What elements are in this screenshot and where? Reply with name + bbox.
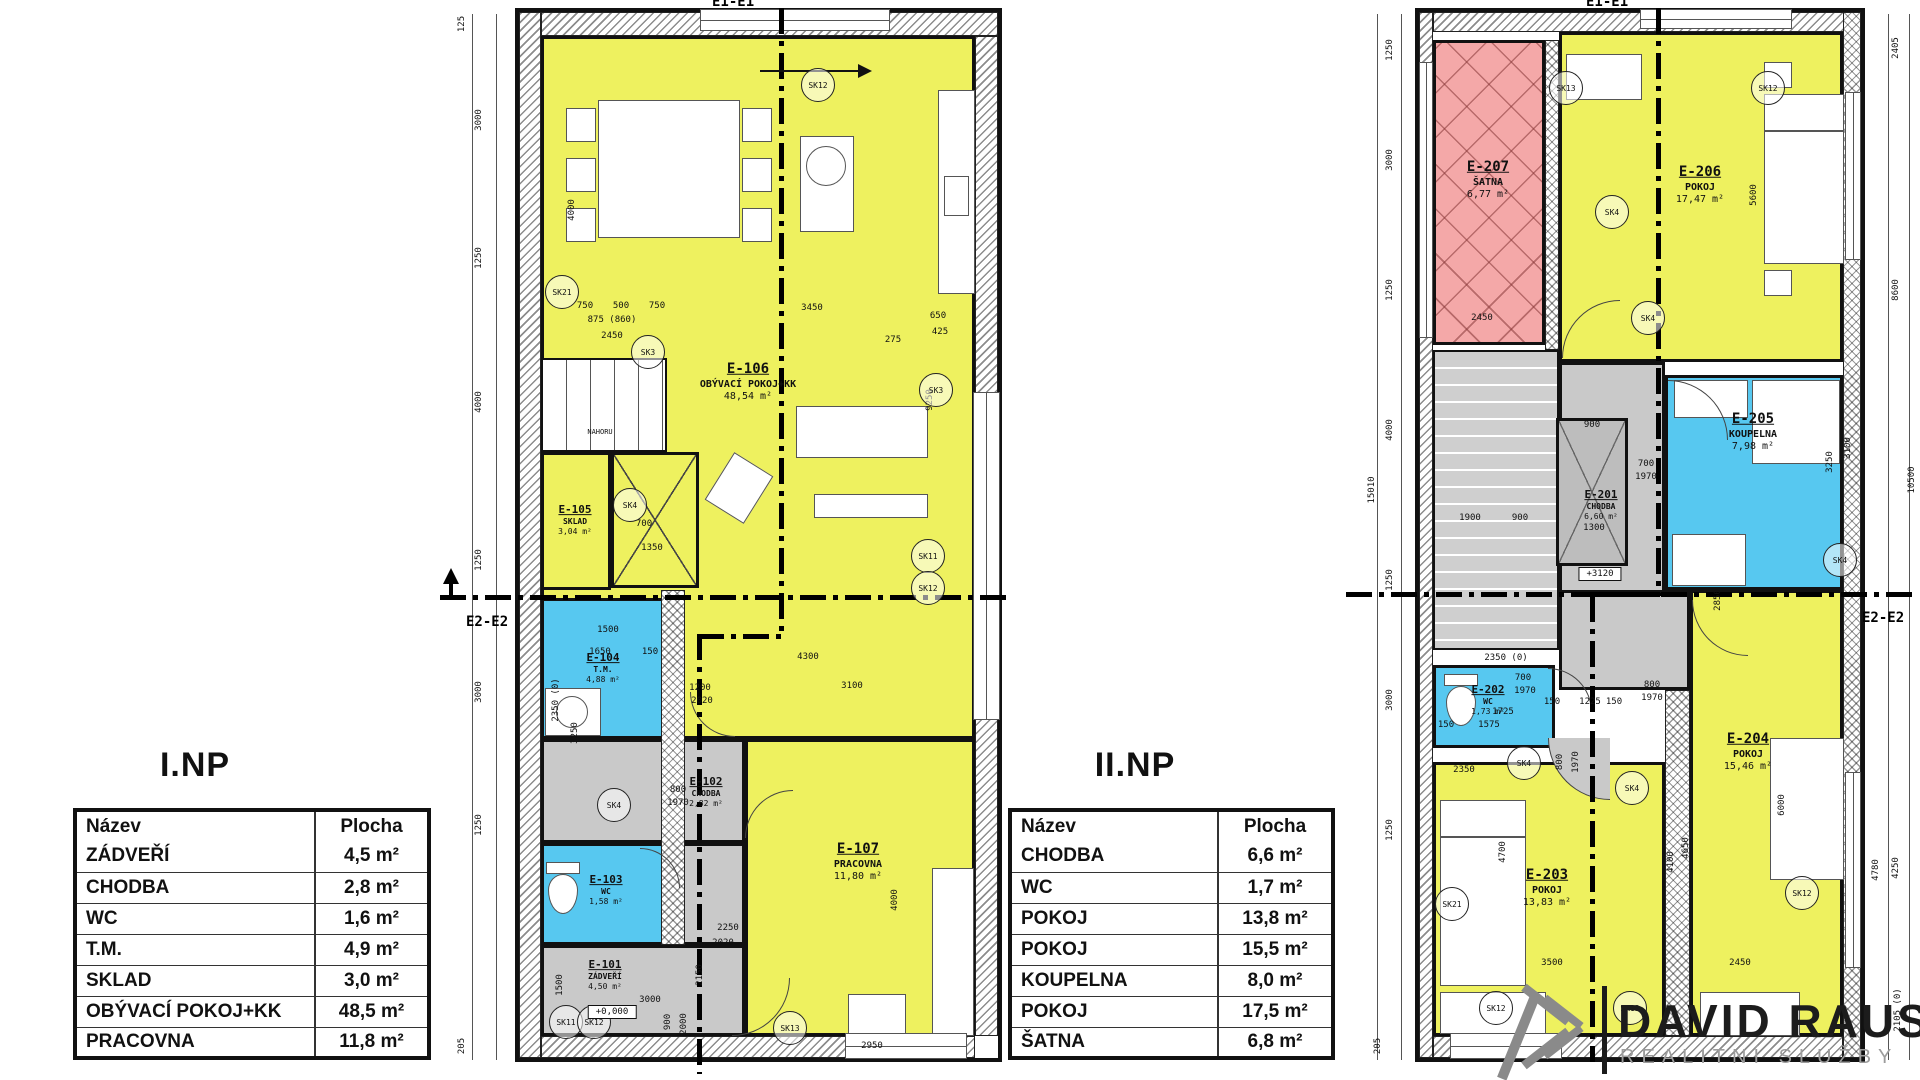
dimension-label: 1225 [1579,697,1601,707]
window [1640,9,1792,29]
room-label-e205: E-205 KOUPELNA 7,98 m² [1729,411,1777,454]
dimension-label: 1350 [641,543,663,553]
dimension-label: 4000 [474,391,484,413]
dimension-label: 750 [577,301,593,311]
bathtub [1672,534,1746,586]
hall-vestibule [1559,590,1690,690]
room-area-cell: 4,5 m² [315,841,429,872]
dimension-label: 3250 [1825,451,1835,473]
window [1845,772,1861,968]
floor2-area-table: Název Plocha CHODBA 6,6 m² WC 1,7 m² POK… [1008,808,1335,1060]
dimension-label: 2000 [679,1013,689,1035]
room-label-e103: E-103 WC 1,58 m² [589,873,623,907]
dimension-label: 1970 [1635,472,1657,482]
sk-marker: SK21 [545,275,579,309]
toilet-tank [546,862,580,874]
dimension-label: 4000 [890,889,900,911]
room-area-cell: 6,6 m² [1218,841,1333,872]
dimension-label: 3000 [1385,149,1395,171]
nightstand [1764,270,1792,296]
dimension-label: 1200 [689,683,711,693]
dimension-label: 800 [670,785,686,795]
sk-marker: SK4 [1823,543,1857,577]
dimension-label: 4000 [1385,419,1395,441]
chair [742,108,772,142]
sk-marker: SK4 [597,788,631,822]
sk-marker: SK12 [801,68,835,102]
dimension-label: 1900 [1459,513,1481,523]
room-label-e204: E-204 POKOJ 15,46 m² [1724,731,1772,774]
section-label-e2: E2-E2 [466,614,508,630]
dimension-label: 1250 [474,549,484,571]
dimension-label: 2450 [1471,313,1493,323]
room-area-cell: 15,5 m² [1218,934,1333,965]
floor1-area-table: Název Plocha ZÁDVEŘÍ 4,5 m² CHODBA 2,8 m… [73,808,431,1060]
dimension-label: 3100 [841,681,863,691]
sk-marker: SK11 [911,539,945,573]
dimension-label: 1575 [1478,720,1500,730]
dimension-label: 875 (860) [588,315,637,325]
bed-pillow-line [1764,130,1844,132]
dimension-label: 4000 [567,199,577,221]
header-name: Název [1010,810,1218,841]
dimension-label: 1970 [1641,693,1663,703]
room-name-cell: SKLAD [75,965,315,996]
room-name-cell: PRACOVNA [75,1027,315,1058]
room-name-cell: POKOJ [1010,903,1218,934]
dimension-label: 205 [1373,1038,1383,1054]
dimension-label: 4780 [1871,859,1881,881]
sk-marker: SK4 [1631,301,1665,335]
chair [742,208,772,242]
wall-hatch [519,12,541,1058]
sk-marker: SK12 [1751,71,1785,105]
bed [1764,94,1844,264]
room-name-cell: KOUPELNA [1010,965,1218,996]
cooktop [806,146,846,186]
dimension-label: 900 [663,1014,673,1030]
logo-divider [1602,986,1607,1074]
dimension-label: 4700 [1498,841,1508,863]
sk-marker: SK4 [1615,771,1649,805]
section-label-e1: E1-E1 [1586,0,1628,10]
staircase [1433,350,1559,650]
table-header-row: Název Plocha [1010,810,1333,841]
dimension-label: 150 [1544,697,1560,707]
table-header-row: Název Plocha [75,810,429,841]
dimension-label: 500 [613,301,629,311]
dimension-label: 425 [932,327,948,337]
sofa [796,406,928,458]
table-row: KOUPELNA 8,0 m² [1010,965,1333,996]
section-label-e2: E2-E2 [1862,610,1904,626]
room-label-e206: E-206 POKOJ 17,47 m² [1676,164,1724,207]
dimension-label: 6000 [1777,794,1787,816]
desk [848,994,906,1038]
room-area-cell: 13,8 m² [1218,903,1333,934]
dimension-label: 2350 (0) [1484,653,1527,663]
room-label-e101: E-101 ZÁDVEŘÍ 4,50 m² [588,958,622,992]
dimension-label: 150 [1438,720,1454,730]
sk-marker: SK3 [919,373,953,407]
dimension-label: 5600 [1749,184,1759,206]
dimension-label: 2020 [691,696,713,706]
dim-chain-line [472,14,473,1060]
room-area-cell: 1,6 m² [315,903,429,934]
room-area-cell: 11,8 m² [315,1027,429,1058]
section-line-e1 [1590,596,1595,1062]
logo-tagline: REALITNÍ SLUŽBY [1620,1046,1898,1069]
logo-name: DAVID RAUS [1618,994,1920,1048]
room-label-e202: E-202 WC 1,73 m² [1471,683,1505,717]
table-row: CHODBA 2,8 m² [75,872,429,903]
dimension-label: 2850 [1713,589,1723,611]
dimension-label: 900 [1584,420,1600,430]
chair [566,158,596,192]
dimension-label: 150 [642,647,658,657]
dimension-label: 1250 [474,247,484,269]
dimension-label: 15010 [1367,476,1377,503]
room-label-e105: E-105 SKLAD 3,04 m² [558,503,592,537]
section-label-e1: E1-E1 [712,0,754,10]
dim-chain-line [1401,14,1402,1060]
dimension-label: 275 [885,335,901,345]
sk-marker: SK21 [1435,887,1469,921]
floorplan-sheet: E2-E2 E1-E1 NAHORU 125300012504000125030… [0,0,1920,1080]
dim-chain-line [1377,14,1378,1060]
dimension-label: 2020 [712,938,734,948]
room-label-e104: E-104 T.M. 4,88 m² [586,651,620,685]
dimension-label: 3450 [801,303,823,313]
room-name-cell: CHODBA [75,872,315,903]
room-label-e102: E-102 CHODBA 2,82 m² [689,775,723,809]
coffee-table [814,494,928,518]
dimension-label: 4650 [1681,837,1691,859]
direction-arrow-head [858,64,872,78]
header-area: Plocha [1218,810,1333,841]
room-name-cell: WC [1010,872,1218,903]
bed-pillow-line [1440,836,1526,838]
party-wall-hatch [661,590,685,945]
dimension-label: 2150 [695,964,705,986]
table-row: SKLAD 3,0 m² [75,965,429,996]
sk-marker: SK12 [1785,876,1819,910]
dimension-label: 650 [930,311,946,321]
table-row: CHODBA 6,6 m² [1010,841,1333,872]
dimension-label: 800 [1555,754,1565,770]
dimension-label: 3000 [1385,689,1395,711]
sk-marker: SK13 [1549,71,1583,105]
dimension-label: 3250 [570,722,580,744]
table-row: ZÁDVEŘÍ 4,5 m² [75,841,429,872]
floor2-title: II.NP [1040,746,1230,785]
chair [566,108,596,142]
dining-table [598,100,740,238]
dimension-label: 1970 [1514,686,1536,696]
room-name-cell: POKOJ [1010,996,1218,1027]
table-row: PRACOVNA 11,8 m² [75,1027,429,1058]
room-area-cell: 48,5 m² [315,996,429,1027]
window [700,9,890,31]
room-name-cell: OBÝVACÍ POKOJ+KK [75,996,315,1027]
table-row: POKOJ 15,5 m² [1010,934,1333,965]
window [1845,92,1861,260]
room-area-cell: 6,8 m² [1218,1027,1333,1058]
dimension-label: 2950 [861,1041,883,1051]
window [973,392,1000,720]
dimension-label: 2350 (0) [551,678,561,721]
stairs-label: NAHORU [587,428,612,436]
header-area: Plocha [315,810,429,841]
dimension-label: 205 [457,1038,467,1054]
dimension-label: 1500 [597,625,619,635]
sk-marker: SK12 [911,571,945,605]
sk-marker: SK3 [631,335,665,369]
dimension-label: 1970 [1571,751,1581,773]
dimension-label: 125 [457,16,467,32]
dimension-label: 1250 [474,814,484,836]
dimension-label: 150 [1606,697,1622,707]
section-arrow-stem [449,582,453,596]
section-line-e1 [779,8,784,638]
section-line-e1 [1656,8,1661,596]
dimension-label: 900 [1512,513,1528,523]
room-area-cell: 3,0 m² [315,965,429,996]
staircase [541,358,667,452]
room-area-cell: 2,8 m² [315,872,429,903]
wardrobe [932,868,974,1036]
dimension-label: 1250 [1385,569,1395,591]
dimension-label: 2250 [717,923,739,933]
dimension-label: 2450 [1729,958,1751,968]
table-row: WC 1,6 m² [75,903,429,934]
dimension-label: 3000 [639,995,661,1005]
room-name-cell: ZÁDVEŘÍ [75,841,315,872]
room-area-cell: 1,7 m² [1218,872,1333,903]
table-row: OBÝVACÍ POKOJ+KK 48,5 m² [75,996,429,1027]
dim-chain-line [496,14,497,1060]
dimension-label: 1500 [555,974,565,996]
room-label-e203: E-203 POKOJ 13,83 m² [1523,867,1571,910]
dimension-label: 10500 [1907,466,1917,493]
level-badge: +0,000 [588,1005,637,1019]
table-row: POKOJ 13,8 m² [1010,903,1333,934]
dimension-label: 1250 [1385,39,1395,61]
room-label-e207: E-207 ŠATNA 6,77 m² [1467,159,1509,202]
dimension-label: 1970 [667,798,689,808]
dim-chain-line [1909,14,1910,1060]
dimension-label: 800 [1644,680,1660,690]
dimension-label: 3100 [1843,437,1853,459]
sk-marker: SK4 [613,488,647,522]
room-label-e106: E-106 OBÝVACÍ POKOJ+KK 48,54 m² [700,361,796,404]
dimension-label: 2450 [601,331,623,341]
room-name-cell: CHODBA [1010,841,1218,872]
room-area-cell: 4,9 m² [315,934,429,965]
room-area-cell: 8,0 m² [1218,965,1333,996]
header-name: Název [75,810,315,841]
room-label-e107: E-107 PRACOVNA 11,80 m² [834,841,882,884]
table-row: T.M. 4,9 m² [75,934,429,965]
section-line-e2 [1346,592,1918,597]
dimension-label: 3000 [474,681,484,703]
dimension-label: 1250 [1385,819,1395,841]
section-line-e1 [698,634,784,639]
window [1419,62,1433,338]
dimension-label: 3000 [474,109,484,131]
table-row: ŠATNA 6,8 m² [1010,1027,1333,1058]
room-name-cell: T.M. [75,934,315,965]
room-name-cell: POKOJ [1010,934,1218,965]
dimension-label: 2350 [1453,765,1475,775]
floor1-title: I.NP [100,746,290,785]
dimension-label: 1250 [1385,279,1395,301]
dimension-label: 700 [1638,459,1654,469]
chair [742,158,772,192]
dimension-label: 4250 [1891,857,1901,879]
dimension-label: 3500 [1541,958,1563,968]
dimension-label: 1300 [1583,523,1605,533]
dimension-label: 4300 [797,652,819,662]
table-row: POKOJ 17,5 m² [1010,996,1333,1027]
dimension-label: 4100 [1666,851,1676,873]
kitchen-sink [944,176,969,216]
dimension-label: 750 [649,301,665,311]
dim-chain-line [1888,14,1889,1060]
sk-marker: SK4 [1595,195,1629,229]
dimension-label: 700 [1515,673,1531,683]
room-area-cell: 17,5 m² [1218,996,1333,1027]
dimension-label: 2405 [1891,37,1901,59]
level-badge: +3120 [1578,567,1621,581]
sk-marker: SK4 [1507,746,1541,780]
room-label-e201: E-201 CHODBA 6,60 m² [1584,488,1618,522]
room-name-cell: ŠATNA [1010,1027,1218,1058]
table-row: WC 1,7 m² [1010,872,1333,903]
dimension-label: 700 [636,519,652,529]
sk-marker: SK12 [1479,991,1513,1025]
sk-marker: SK13 [773,1011,807,1045]
room-name-cell: WC [75,903,315,934]
dimension-label: 8600 [1891,279,1901,301]
